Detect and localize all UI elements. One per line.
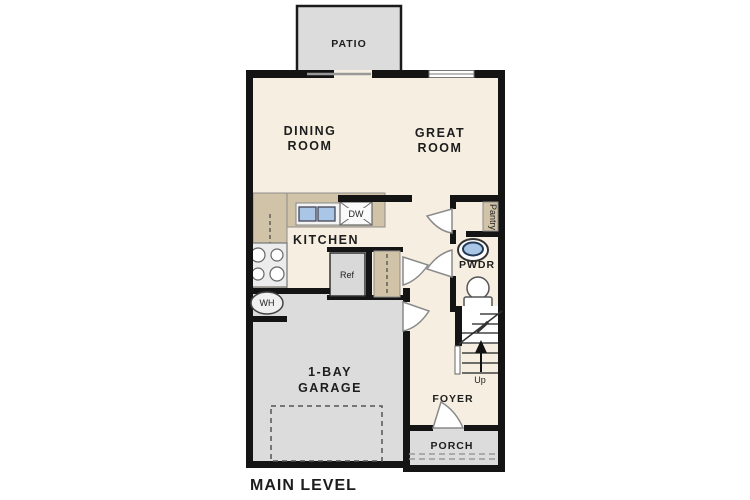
wall-segment [366,250,372,297]
refrigerator-label: Ref [340,270,355,280]
water-heater-label: WH [260,298,275,308]
floor-plan: PATIO DW Ref [0,0,750,500]
garage-label-line1: 1-BAY [308,365,352,379]
plan-title: MAIN LEVEL [250,477,357,494]
kitchen-label: KITCHEN [293,233,359,247]
floor-plan-drawing: PATIO DW Ref [0,0,750,500]
stairs-up-label: Up [474,375,486,385]
coat-closet [374,251,400,297]
foyer-label: FOYER [432,393,473,405]
great-room-label-line1: GREAT [415,126,465,140]
porch-label: PORCH [431,440,474,452]
handrail [455,346,460,374]
pwdr-sink-icon [458,239,488,261]
great-room-label-line2: ROOM [418,141,463,155]
pantry-shelf: Pantry [483,202,498,231]
pwdr-label: PWDR [459,259,495,271]
dishwasher-label: DW [349,209,364,219]
range-icon [248,243,287,287]
dishwasher-icon: DW [340,202,372,225]
dining-room-label-line1: DINING [284,124,337,138]
garage-label-line2: GARAGE [298,381,362,395]
toilet-icon [464,277,492,308]
window-icon [429,71,474,78]
pantry-label: Pantry [488,204,498,231]
patio-label: PATIO [331,38,367,50]
dining-room-label-line2: ROOM [288,139,333,153]
refrigerator-icon: Ref [330,253,365,296]
water-heater-icon: WH [251,292,283,314]
kitchen-sink-icon [296,203,340,225]
